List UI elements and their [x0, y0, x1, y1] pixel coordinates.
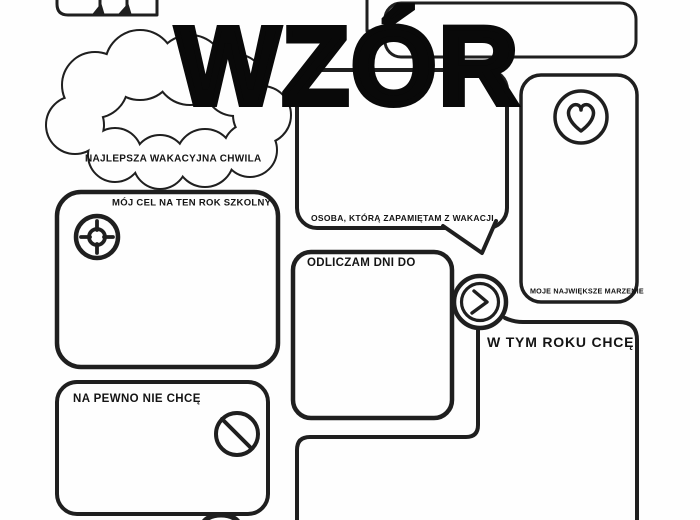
countdown-label: ODLICZAM DNI DO: [307, 257, 416, 269]
person-label: OSOBA, KTÓRĄ ZAPAMIĘTAM Z WAKACJI: [311, 213, 494, 223]
top-left-fragment: [57, 0, 157, 15]
wzor-watermark: WZÓR: [176, 12, 520, 122]
dream-box: [521, 75, 637, 302]
no-entry-icon: [216, 413, 258, 455]
best-moment-label: NAJLEPSZA WAKACYJNA CHWILA: [85, 154, 262, 165]
goal-box: [57, 192, 278, 367]
clock-icon: [454, 276, 506, 328]
dont-want-label: NA PEWNO NIE CHCĘ: [73, 393, 201, 405]
goal-label: MÓJ CEL NA TEN ROK SZKOLNY: [112, 198, 271, 209]
cutoff-shape-bottom: [203, 515, 239, 520]
target-icon: [76, 216, 118, 258]
this-year-label: W TYM ROKU CHCĘ: [487, 334, 634, 350]
heart-icon: [555, 91, 607, 143]
dream-label: MOJE NAJWIĘKSZE MARZENIE: [530, 287, 644, 296]
countdown-box: [293, 252, 452, 418]
worksheet-page: NAJLEPSZA WAKACYJNA CHWILA OSOBA, KTÓRĄ …: [0, 0, 700, 520]
